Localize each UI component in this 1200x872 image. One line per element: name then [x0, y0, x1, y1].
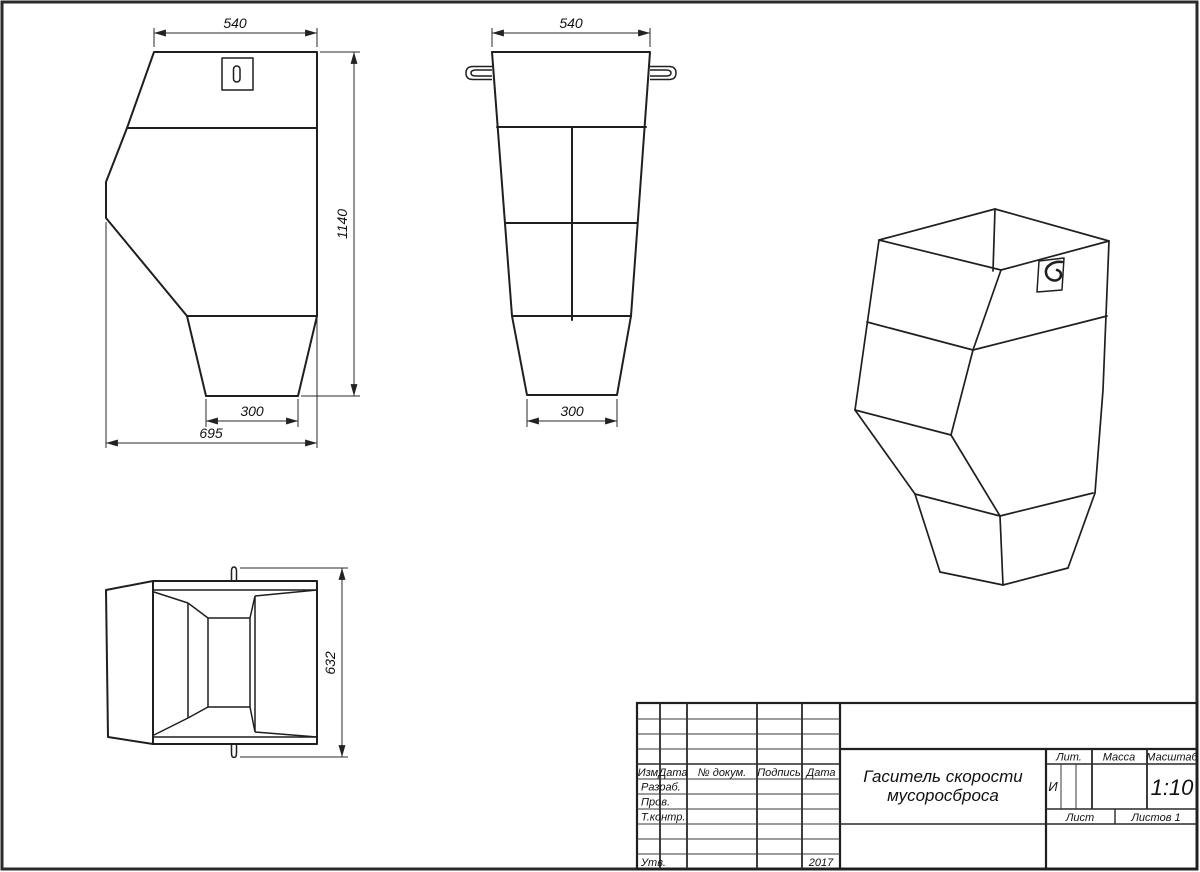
iso-hopper-crease-left [915, 494, 1000, 516]
top-funnel-lines [154, 590, 317, 737]
iso-front-seam [951, 270, 1001, 435]
document-title-line2: мусоросброса [887, 786, 999, 805]
dim-text-695: 695 [199, 425, 223, 441]
front-hook-plate [222, 58, 253, 90]
front-view: 540 1140 300 695 [106, 15, 360, 448]
dim-text-300-side: 300 [560, 403, 584, 419]
drawing-canvas: 540 1140 300 695 [0, 0, 1200, 872]
iso-hopper-crease-right [1000, 493, 1093, 516]
sheet-frame [2, 2, 1197, 869]
top-left-flap [106, 581, 153, 744]
dim-side-outlet: 300 [527, 399, 617, 427]
iso-outlet-bottom [940, 568, 1068, 585]
top-outer-box [153, 581, 317, 744]
isometric-view [855, 209, 1109, 585]
hook-icon [1046, 262, 1062, 281]
drawing-sheet: 540 1140 300 695 [0, 0, 1200, 872]
title-block: Изм Дата № докум. Подпись Дата Разраб. П… [637, 703, 1198, 869]
front-hook-slot [234, 66, 241, 82]
tb-lit-label: Лит. [1055, 752, 1082, 764]
dim-front-outlet: 300 [206, 399, 298, 427]
tb-row-utv: Утв. [640, 857, 666, 869]
dim-front-top-width: 540 [154, 15, 317, 47]
top-lug-upper [232, 567, 237, 581]
dim-text-300-front: 300 [240, 403, 264, 419]
iso-inner-seam [993, 209, 995, 271]
tb-row-prov: Пров. [641, 797, 670, 809]
dim-side-top-width: 540 [492, 15, 650, 47]
side-lug-right [650, 67, 676, 80]
side-lug-left [466, 67, 492, 80]
iso-hopper-right [1068, 493, 1095, 568]
document-title-line1: Гаситель скорости [863, 767, 1023, 786]
tb-year: 2017 [808, 857, 834, 869]
iso-crease-left [867, 322, 973, 350]
tb-col-data2: Дата [804, 767, 835, 779]
iso-crease-right [973, 316, 1107, 350]
tb-col-data1: Дата [656, 767, 687, 779]
front-outline [106, 52, 317, 396]
dim-text-540-side: 540 [559, 15, 583, 31]
iso-hopper-front-corner [1000, 516, 1003, 585]
dim-text-540-front: 540 [223, 15, 247, 31]
tb-scale-value: 1:10 [1151, 775, 1195, 800]
tb-col-izm: Изм [638, 767, 659, 779]
tb-lit-value: И [1048, 779, 1058, 794]
tb-col-doc: № докум. [698, 767, 746, 779]
dim-text-632: 632 [322, 651, 338, 675]
tb-row-tkontr: Т.контр. [641, 812, 685, 824]
tb-col-sign: Подпись [757, 767, 801, 779]
iso-right-edge [1095, 241, 1109, 493]
top-view: 632 [106, 567, 348, 758]
tb-row-razrab: Разраб. [641, 782, 681, 794]
iso-hopper-left [915, 494, 940, 572]
tb-mass-label: Масса [1103, 752, 1136, 764]
tb-scale-label: Масштаб [1146, 752, 1198, 764]
tb-listov-label: Листов 1 [1130, 812, 1180, 824]
side-view: 540 300 [466, 15, 676, 427]
iso-seam-lower [951, 435, 1000, 516]
tb-list-label: Лист [1065, 812, 1094, 824]
dim-text-1140: 1140 [334, 209, 350, 239]
top-lug-lower [232, 744, 237, 758]
